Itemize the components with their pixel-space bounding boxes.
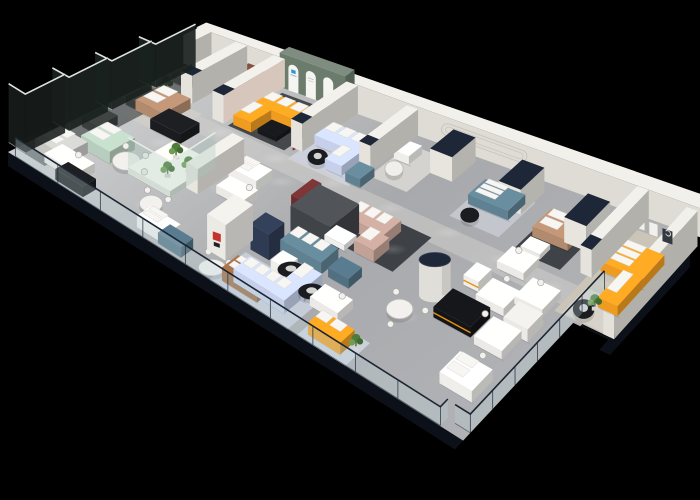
black-lounge-chair (460, 208, 479, 227)
ceiling-light-pool (261, 152, 291, 164)
desk-chairs-right-4 (480, 352, 486, 358)
isometric-render-canvas (0, 0, 700, 500)
arch-niche-1 (288, 63, 298, 93)
round-table-room5 (385, 161, 403, 180)
ceiling-light-pool (433, 227, 463, 239)
brand-logo-mark (213, 231, 221, 248)
showroom-floorplan-image (0, 0, 700, 500)
arch-niche-2 (306, 70, 316, 100)
desk-chair-left (75, 152, 81, 158)
round-dining-right (386, 299, 413, 323)
desk-chair-bottom (339, 293, 345, 299)
desk-chair-mid (246, 184, 252, 190)
desk-chairs-right-3 (482, 311, 488, 317)
east-poster-2 (649, 221, 658, 237)
